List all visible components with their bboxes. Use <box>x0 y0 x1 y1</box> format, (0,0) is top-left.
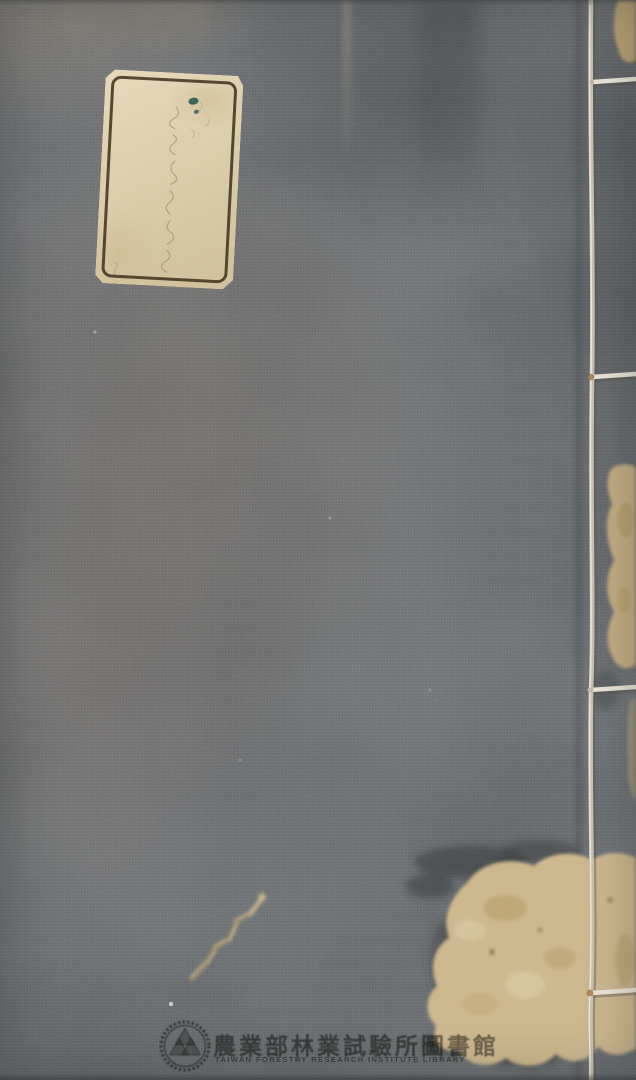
library-seal-icon <box>158 1019 212 1073</box>
bottom-edge-shadow <box>0 1073 636 1080</box>
thread-knot <box>588 374 594 380</box>
book-cover-photo: 農業部林業試驗所圖書館 TAIWAN FORESTRY RESEARCH INS… <box>0 0 636 1080</box>
worn-patch-right <box>607 464 636 668</box>
stamp-text-english: TAIWAN FORESTRY RESEARCH INSTITUTE LIBRA… <box>215 1055 466 1064</box>
thread-hole <box>590 80 595 85</box>
binding-thread-horizontal-4 <box>591 990 636 993</box>
title-label <box>95 69 244 290</box>
label-handwriting <box>95 69 244 290</box>
top-edge-shadow <box>0 0 636 5</box>
library-stamp: 農業部林業試驗所圖書館 TAIWAN FORESTRY RESEARCH INS… <box>158 1014 636 1080</box>
binding-thread-horizontal-2 <box>592 374 636 377</box>
texture-and-damage-overlay <box>0 0 636 1080</box>
binding-thread-horizontal-1 <box>593 79 636 82</box>
thread-hole <box>588 688 593 693</box>
binding-thread-horizontal-3 <box>590 687 636 690</box>
thread-knot <box>587 990 594 997</box>
